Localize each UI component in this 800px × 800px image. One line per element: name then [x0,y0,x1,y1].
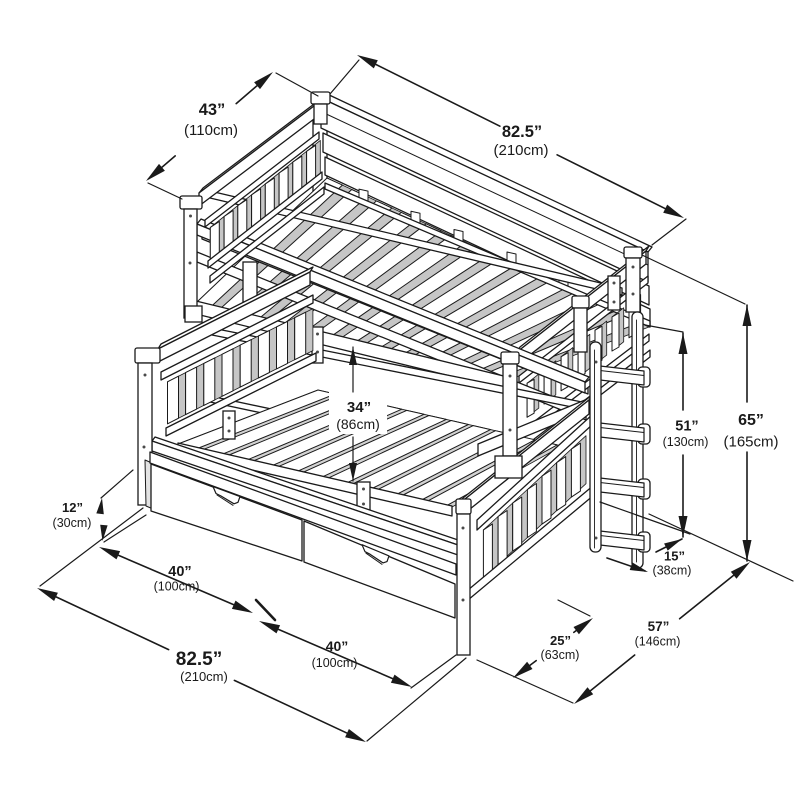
svg-text:(100cm): (100cm) [154,580,200,594]
svg-text:(86cm): (86cm) [336,416,380,432]
svg-text:(63cm): (63cm) [541,648,580,662]
svg-text:(100cm): (100cm) [312,656,358,670]
svg-text:(210cm): (210cm) [493,142,548,159]
svg-text:(130cm): (130cm) [663,435,709,449]
svg-text:25”: 25” [550,633,571,648]
svg-text:(146cm): (146cm) [635,635,681,649]
svg-text:12”: 12” [62,500,83,515]
svg-text:(30cm): (30cm) [53,516,92,530]
svg-text:82.5”: 82.5” [502,123,542,141]
svg-text:(38cm): (38cm) [653,564,692,578]
svg-text:65”: 65” [738,412,764,429]
svg-text:34”: 34” [347,399,371,416]
svg-text:40”: 40” [168,564,191,580]
svg-text:57”: 57” [648,619,670,634]
svg-text:43”: 43” [199,101,226,119]
svg-text:15”: 15” [664,549,685,564]
svg-text:(110cm): (110cm) [184,122,238,139]
svg-text:82.5”: 82.5” [176,649,222,670]
svg-text:40”: 40” [326,638,349,654]
svg-text:(165cm): (165cm) [723,434,778,451]
svg-text:(210cm): (210cm) [180,669,228,684]
svg-text:51”: 51” [675,419,698,435]
